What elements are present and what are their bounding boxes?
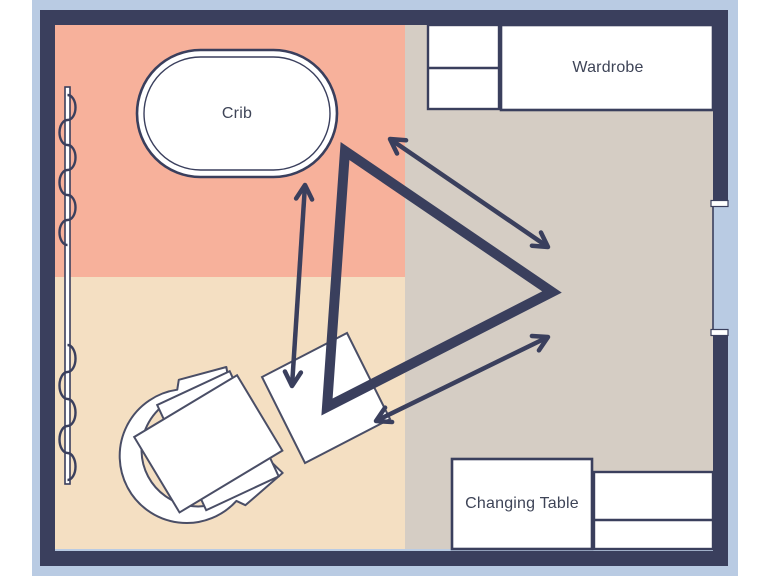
crib-label: Crib [222, 105, 252, 123]
door-jamb-bottom [711, 330, 728, 336]
changing-table-label: Changing Table [465, 495, 579, 513]
nursery-floor-plan: Crib Wardrobe Changing Table [0, 0, 768, 576]
dresser [428, 25, 499, 109]
wardrobe-label: Wardrobe [572, 59, 643, 77]
storage-unit-body [594, 472, 713, 549]
door-gap [713, 206, 730, 330]
door-jamb-top [711, 201, 728, 207]
floor-plan-drawing [0, 0, 768, 576]
door-opening [711, 201, 729, 336]
storage-unit [594, 472, 713, 549]
